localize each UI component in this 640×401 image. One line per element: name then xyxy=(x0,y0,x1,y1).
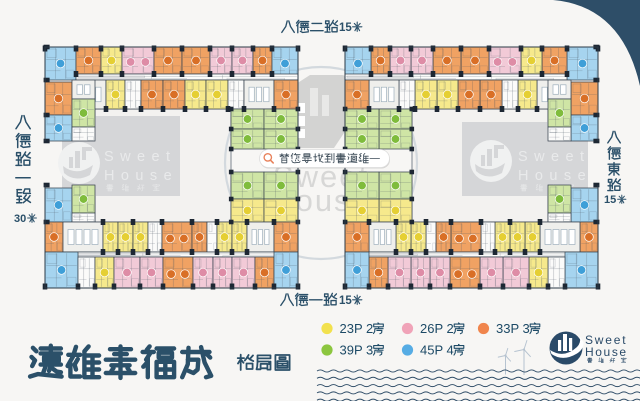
svg-text:S w e e t: S w e e t xyxy=(104,149,171,165)
svg-text:45P 4: 45P 4 xyxy=(420,343,454,358)
svg-text:H o u s e: H o u s e xyxy=(104,168,173,184)
svg-text:30: 30 xyxy=(14,213,26,225)
svg-text:House: House xyxy=(585,345,628,359)
svg-text:15: 15 xyxy=(339,295,352,307)
svg-text:H o u s e: H o u s e xyxy=(518,168,587,184)
svg-text:39P 3: 39P 3 xyxy=(340,343,374,358)
svg-text:33P 3: 33P 3 xyxy=(496,321,530,336)
svg-text:S w e e t: S w e e t xyxy=(518,149,585,165)
svg-text:15: 15 xyxy=(604,194,616,206)
svg-text:15: 15 xyxy=(339,22,352,34)
svg-text:26P 2: 26P 2 xyxy=(420,321,454,336)
svg-text:23P 2: 23P 2 xyxy=(340,321,374,336)
